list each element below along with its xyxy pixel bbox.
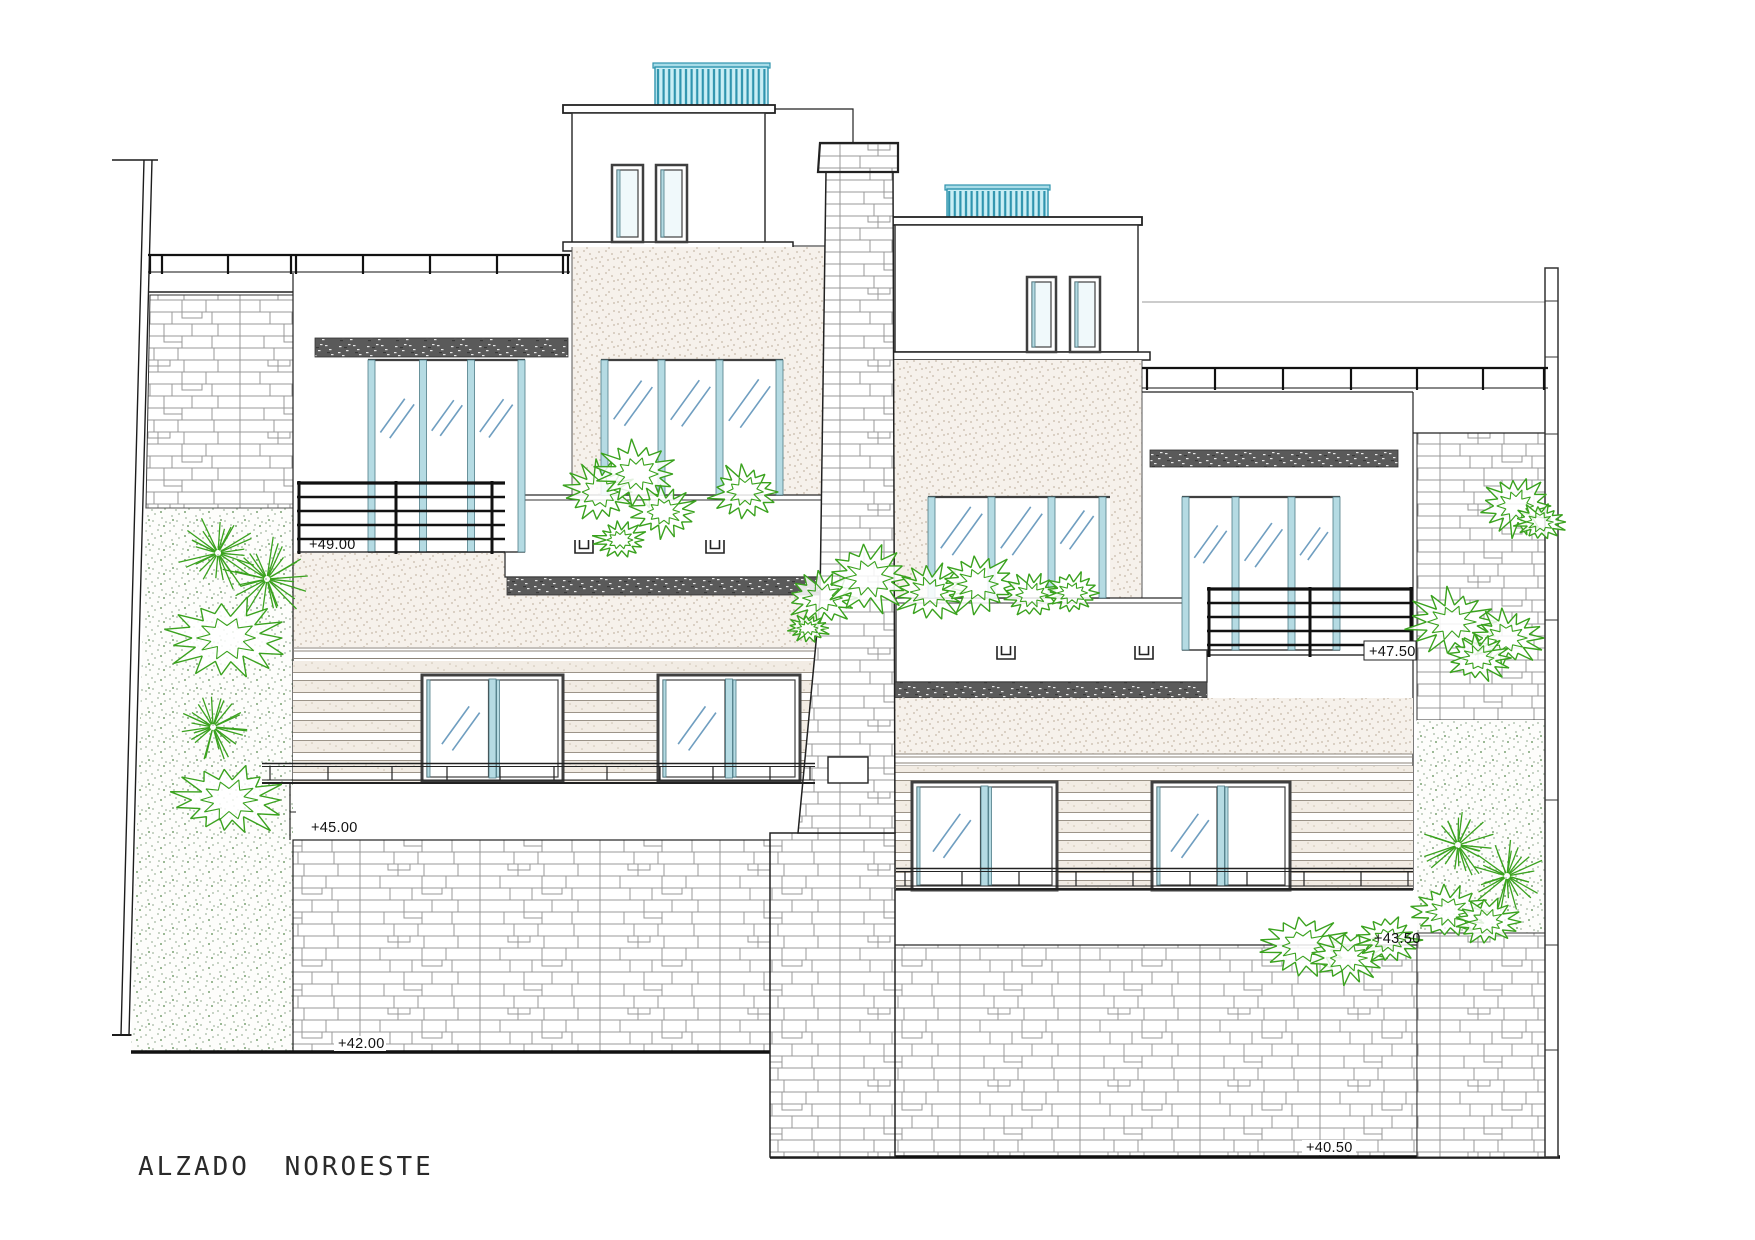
chimney-lower-stone xyxy=(770,833,895,1157)
left-stone-wall xyxy=(146,295,293,508)
window xyxy=(1182,497,1340,650)
right-band-lines xyxy=(893,754,1413,766)
terrace-railing xyxy=(148,255,570,274)
left-pergola xyxy=(653,63,770,105)
right-stone-base xyxy=(893,945,1417,1157)
marker-left-mid: +45.00 xyxy=(311,820,358,836)
window xyxy=(912,782,1057,890)
right-site-strip xyxy=(1413,268,1558,1157)
right-penthouse-floor-slab xyxy=(887,352,1150,360)
left-planter-dark-band xyxy=(507,577,830,595)
marker-left-upper: +49.00 xyxy=(309,537,356,553)
elevation-drawing: +49.00 +45.00 +42.00 +47.50 +43.50 +40.5… xyxy=(0,0,1755,1240)
window xyxy=(612,165,643,242)
right-penthouse xyxy=(895,225,1138,352)
pergola-slats-icon xyxy=(655,69,768,105)
right-lower-stone-wall xyxy=(1417,933,1548,1157)
left-roof-extension-line xyxy=(775,109,853,143)
right-fascia-band xyxy=(1150,450,1398,467)
chimney-cap xyxy=(818,143,898,172)
window xyxy=(1152,782,1290,890)
site-boundary-right xyxy=(1545,268,1558,1157)
right-planter-dark-band xyxy=(892,682,1207,698)
right-lower-beige-wall xyxy=(893,698,1413,754)
window xyxy=(1070,277,1100,352)
left-fascia-band xyxy=(315,338,568,357)
window xyxy=(656,165,687,242)
right-penthouse-roof-slab xyxy=(887,217,1142,225)
marker-right-upper: +47.50 xyxy=(1369,644,1416,660)
window xyxy=(658,675,800,782)
marker-right-mid: +43.50 xyxy=(1374,931,1421,947)
left-stone-base xyxy=(293,840,772,1052)
window xyxy=(422,675,563,782)
window xyxy=(368,360,525,552)
right-pergola xyxy=(945,185,1050,218)
window xyxy=(1027,277,1056,352)
left-balcony-slab-cap xyxy=(828,757,868,783)
marker-right-base: +40.50 xyxy=(1306,1140,1353,1156)
pergola-slats-icon xyxy=(947,191,1048,218)
elevation-sheet: +49.00 +45.00 +42.00 +47.50 +43.50 +40.5… xyxy=(0,0,1755,1240)
right-upper-stone-wall xyxy=(1417,433,1548,720)
left-penthouse-roof-slab xyxy=(563,105,775,113)
drawing-title: ALZADO NOROESTE xyxy=(138,1152,434,1182)
left-band-lines xyxy=(293,648,820,662)
terrace-railing xyxy=(1142,368,1548,390)
marker-left-base: +42.00 xyxy=(338,1036,385,1052)
boundary-post xyxy=(1545,268,1558,1157)
